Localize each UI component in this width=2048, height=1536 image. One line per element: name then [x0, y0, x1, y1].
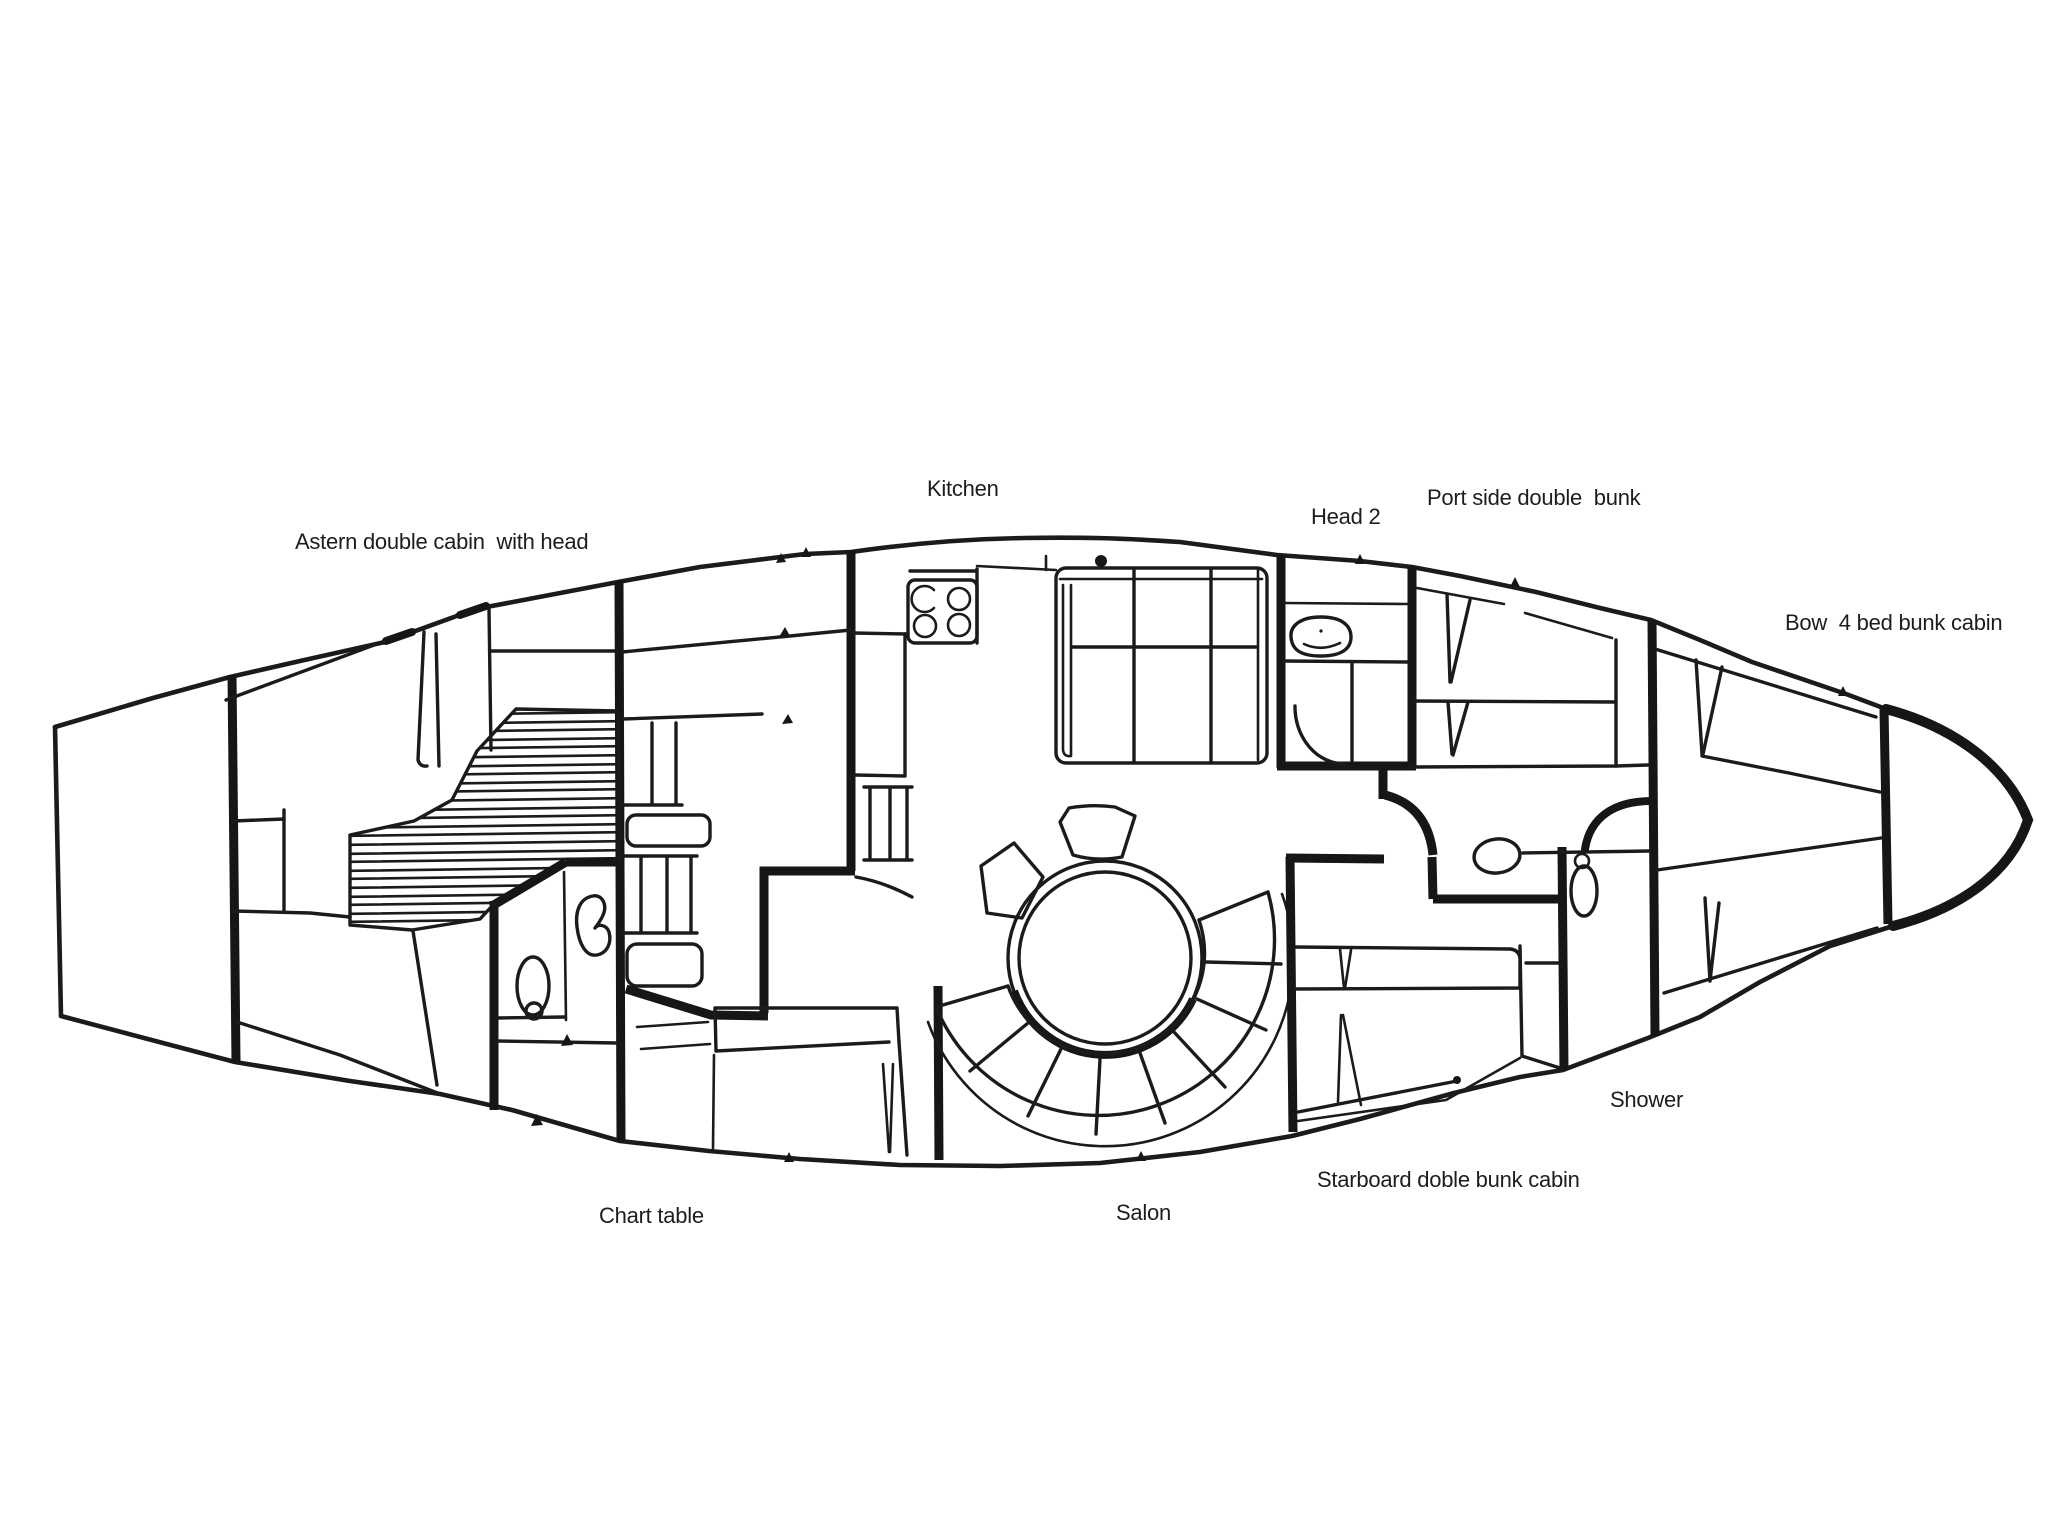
svg-text:Port side double bunk: Port side double bunk	[1427, 485, 1642, 510]
svg-text:Starboard doble bunk cabin: Starboard doble bunk cabin	[1317, 1167, 1580, 1192]
svg-text:Astern double cabin with head: Astern double cabin with head	[295, 529, 588, 554]
svg-text:Head 2: Head 2	[1311, 504, 1380, 529]
svg-text:Chart table: Chart table	[599, 1203, 704, 1228]
svg-text:Salon: Salon	[1116, 1200, 1171, 1225]
svg-text:Kitchen: Kitchen	[927, 476, 999, 501]
svg-text:Shower: Shower	[1610, 1087, 1683, 1112]
svg-text:Bow 4 bed bunk cabin: Bow 4 bed bunk cabin	[1785, 610, 2002, 635]
